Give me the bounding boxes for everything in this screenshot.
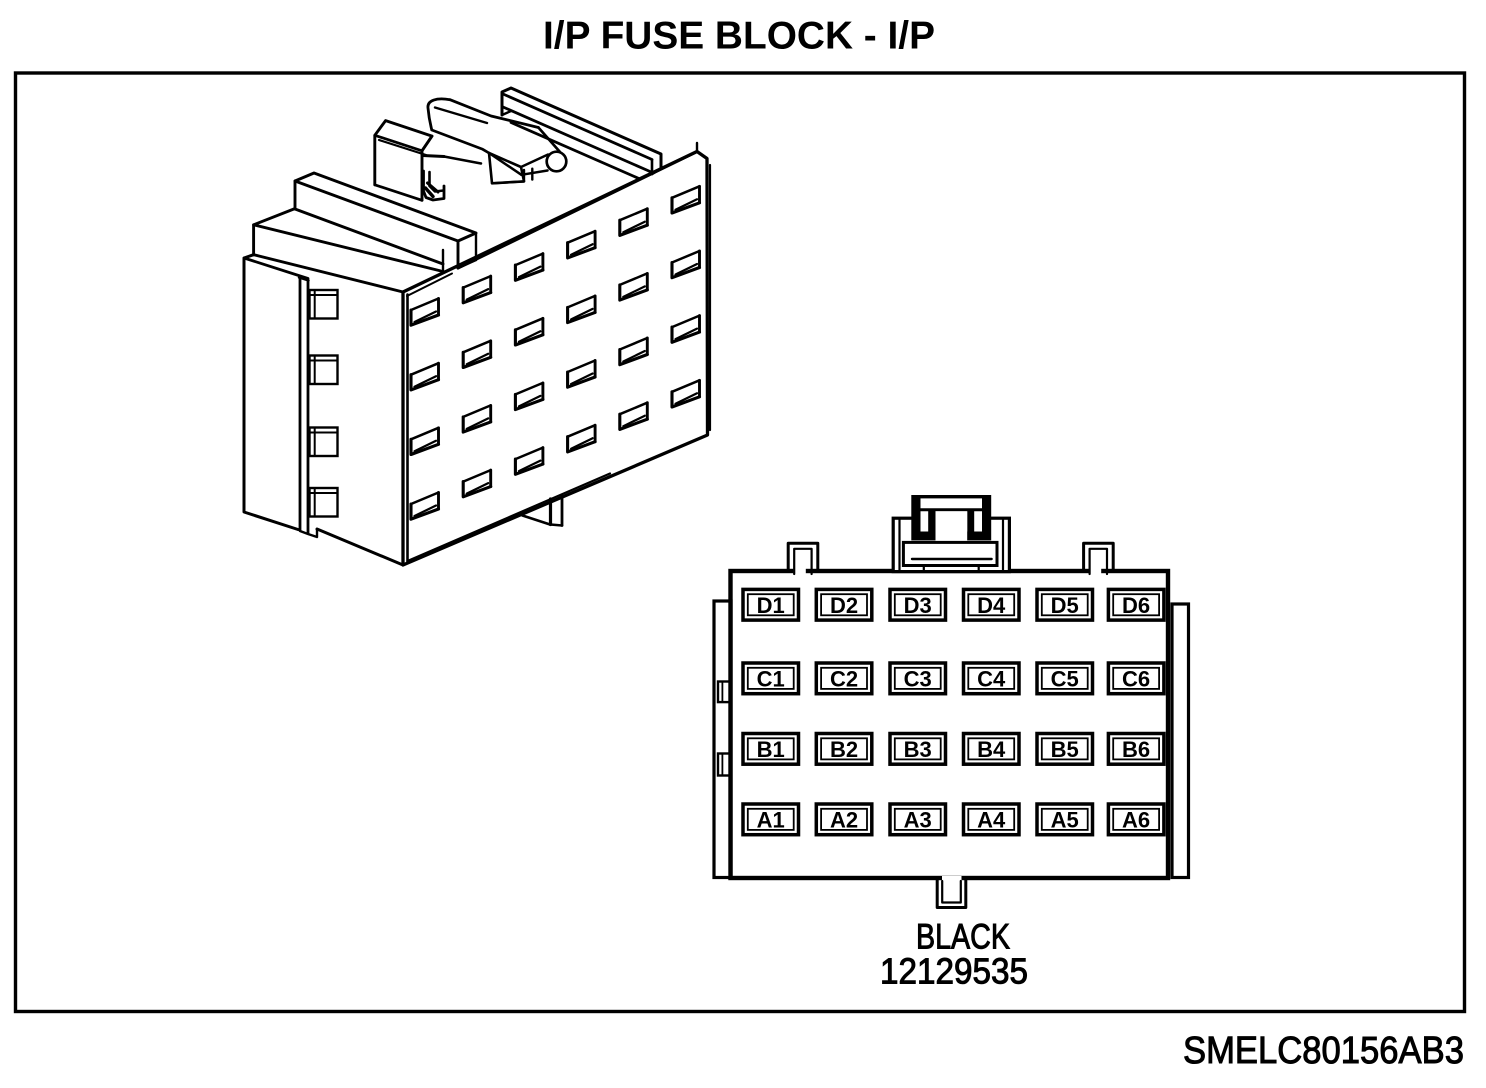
svg-text:D3: D3 — [904, 593, 932, 618]
svg-text:C4: C4 — [977, 667, 1006, 692]
svg-text:D5: D5 — [1051, 593, 1079, 618]
svg-text:B6: B6 — [1122, 737, 1150, 762]
svg-text:A2: A2 — [830, 808, 858, 833]
svg-text:A6: A6 — [1122, 808, 1150, 833]
svg-text:D1: D1 — [757, 593, 785, 618]
svg-text:A3: A3 — [904, 808, 932, 833]
svg-text:D4: D4 — [977, 593, 1006, 618]
svg-text:12129535: 12129535 — [880, 951, 1028, 992]
svg-text:B5: B5 — [1051, 737, 1079, 762]
svg-text:A1: A1 — [757, 808, 785, 833]
svg-text:I/P FUSE BLOCK - I/P: I/P FUSE BLOCK - I/P — [543, 15, 935, 58]
svg-text:C2: C2 — [830, 667, 858, 692]
svg-text:C1: C1 — [757, 667, 785, 692]
svg-text:SMELC80156AB3: SMELC80156AB3 — [1183, 1030, 1464, 1072]
svg-text:D2: D2 — [830, 593, 858, 618]
svg-text:C3: C3 — [904, 667, 932, 692]
svg-text:A4: A4 — [977, 808, 1006, 833]
svg-text:D6: D6 — [1122, 593, 1150, 618]
svg-text:C5: C5 — [1051, 667, 1079, 692]
svg-text:B3: B3 — [904, 737, 932, 762]
svg-text:B4: B4 — [977, 737, 1006, 762]
svg-text:C6: C6 — [1122, 667, 1150, 692]
svg-text:B1: B1 — [757, 737, 785, 762]
svg-text:B2: B2 — [830, 737, 858, 762]
svg-text:A5: A5 — [1051, 808, 1079, 833]
